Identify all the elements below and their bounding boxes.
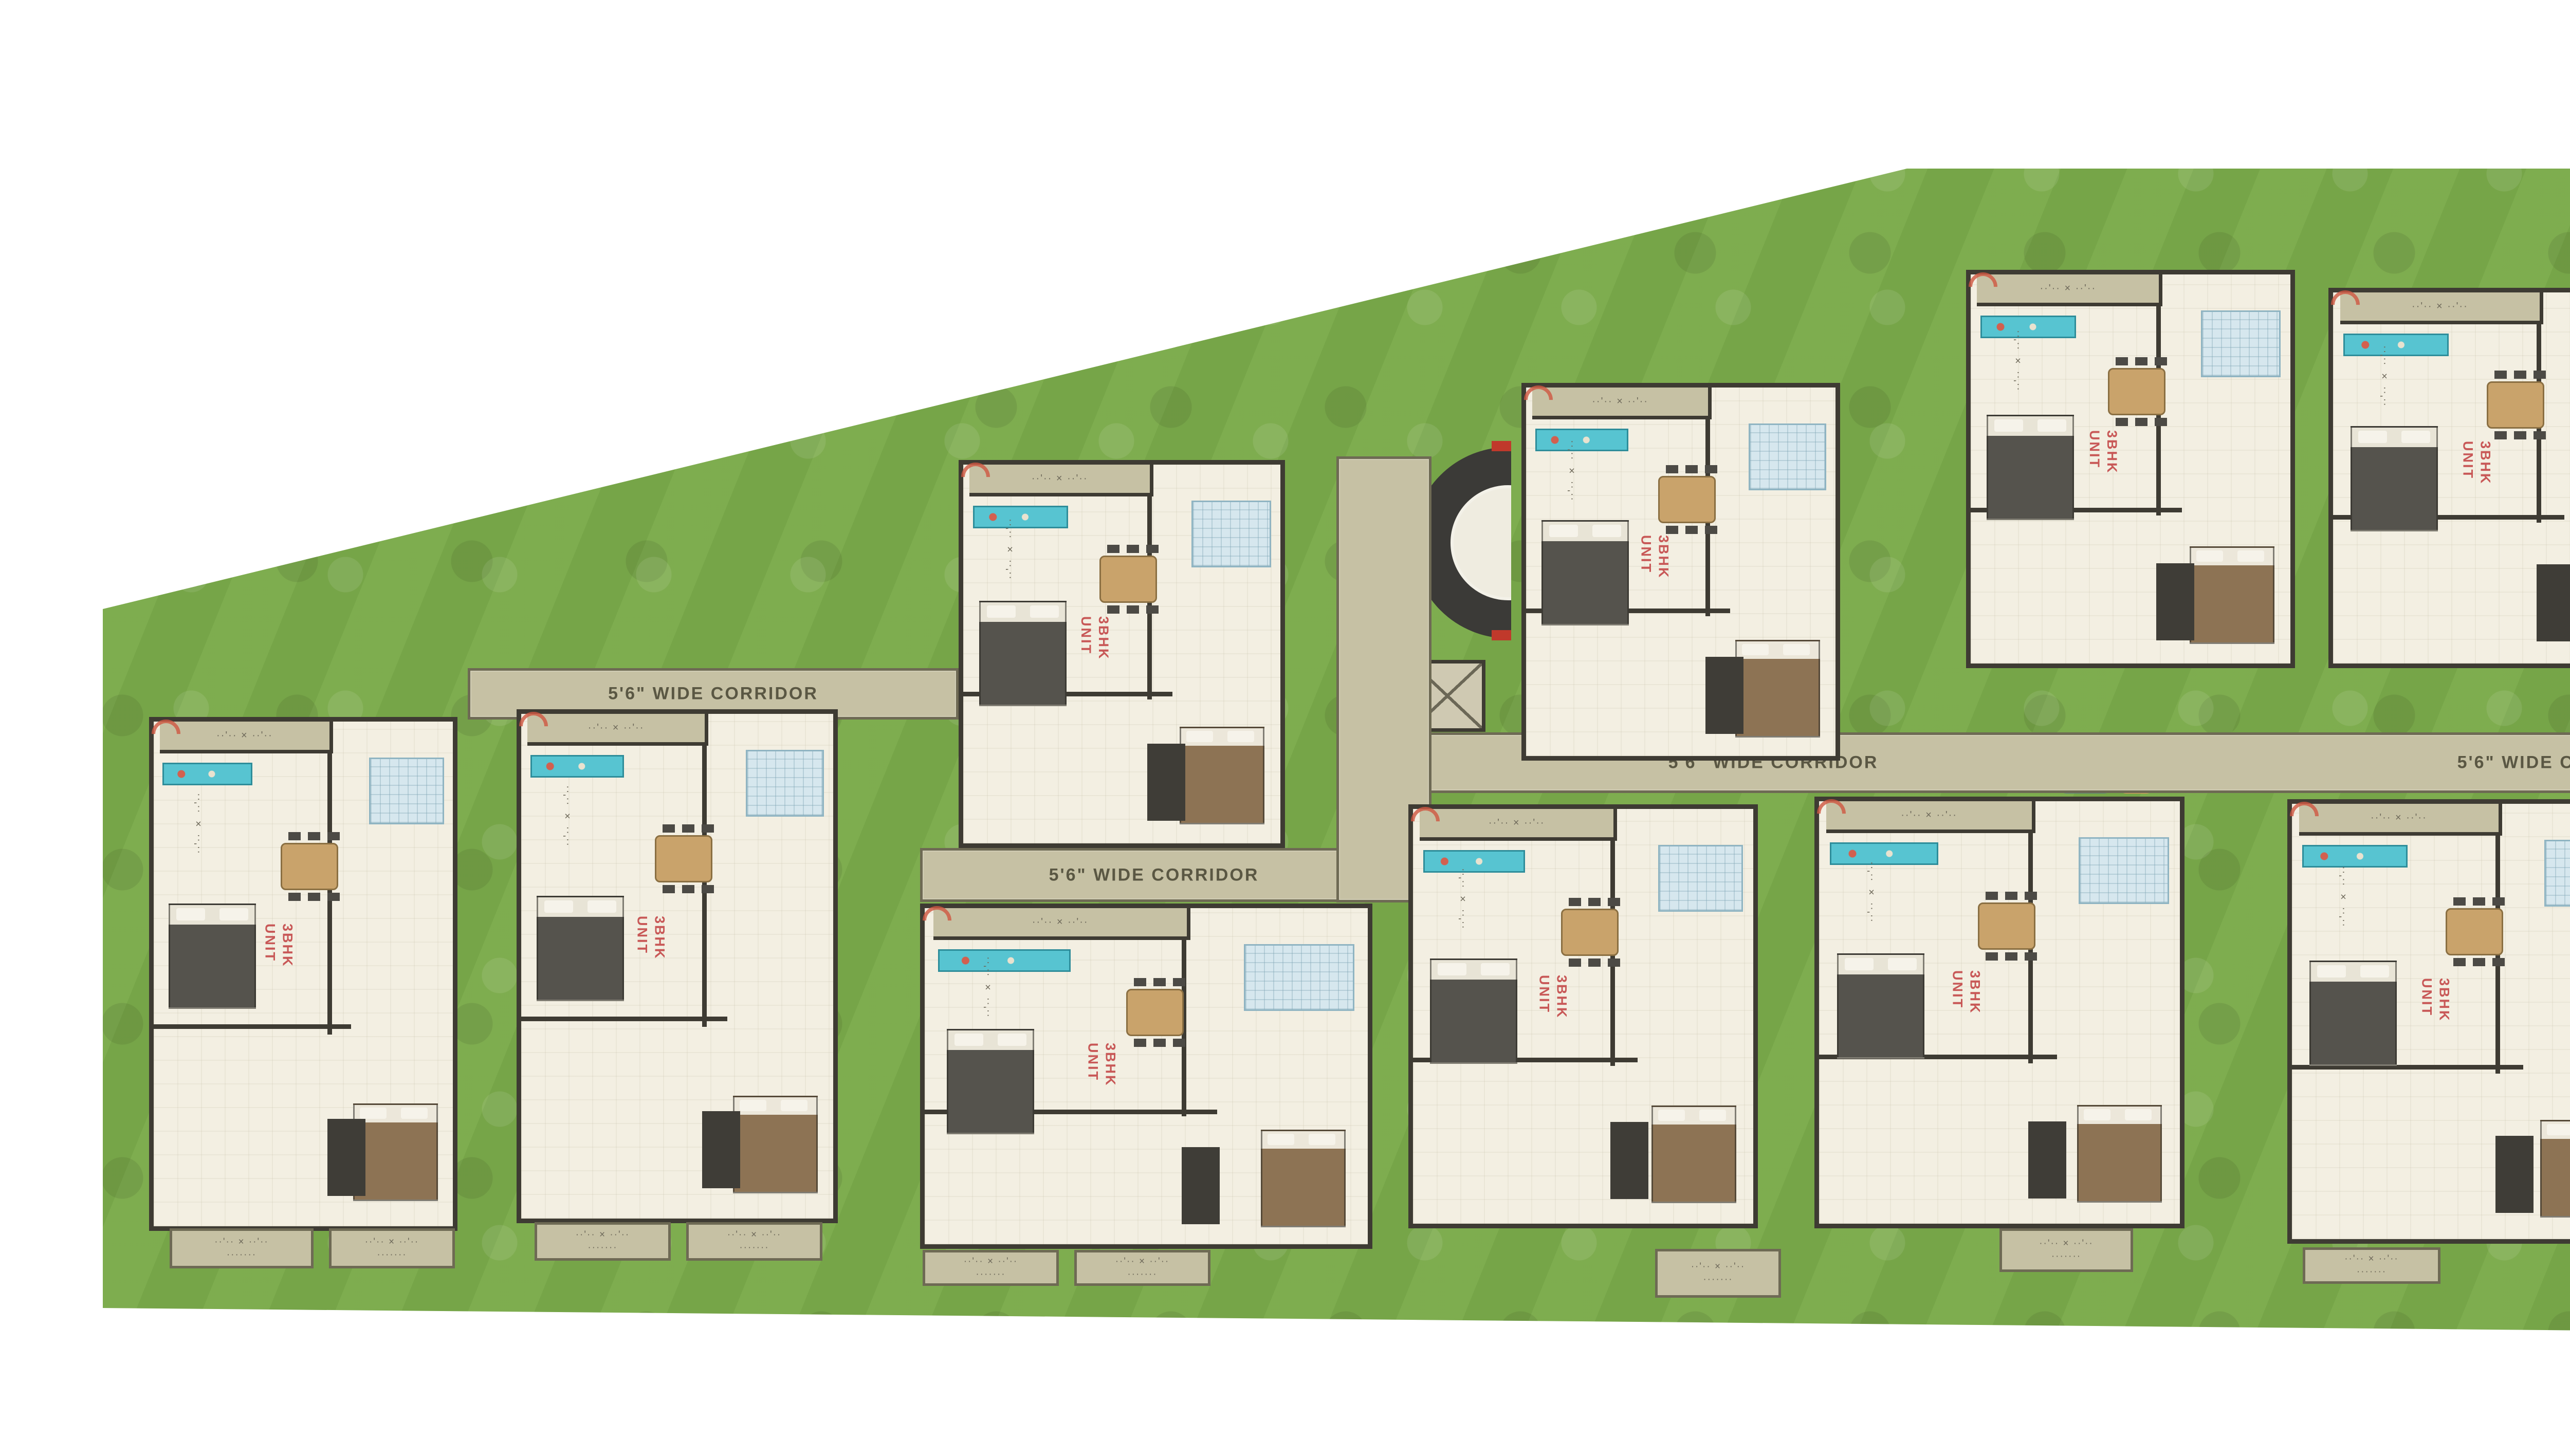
- unit-area-label-box: ··'·· × ··'·········: [329, 1228, 455, 1268]
- label-box-text: ·······: [976, 1269, 1005, 1280]
- bed: [2351, 426, 2438, 531]
- label-box-text: ·······: [1703, 1274, 1733, 1285]
- interior-wall: [521, 1017, 727, 1021]
- unit-type-label: 3BHK UNIT: [262, 924, 297, 1006]
- bathroom: [369, 758, 444, 824]
- bed: [1837, 953, 1924, 1059]
- bed: [1180, 727, 1264, 824]
- label-box-dimension: ··'·· × ··'··: [1691, 1261, 1746, 1273]
- unit-type-label: 3BHK UNIT: [1084, 1043, 1119, 1125]
- bed: [947, 1029, 1034, 1134]
- unit-area-label-box: ··'·· × ··'·········: [1655, 1249, 1781, 1298]
- unit-area-label-box: ··'·· × ··'·········: [686, 1222, 822, 1261]
- dining-table: [1561, 909, 1619, 956]
- unit-bot-1: ··'·· × ··'·· 3BHK UNIT ··'·· × ··'··: [149, 717, 457, 1231]
- unit-top-3: ··'·· × ··'·· 3BHK UNIT ··'·· × ··'··: [2328, 288, 2570, 668]
- balcony-strip: ··'·· × ··'··: [2340, 292, 2544, 324]
- balcony-strip: ··'·· × ··'··: [969, 465, 1153, 496]
- balcony-dimension-text: ··'·· × ··'··: [1901, 809, 1957, 821]
- bed: [1651, 1105, 1736, 1203]
- bed: [537, 896, 624, 1001]
- label-box-text: ·······: [1127, 1269, 1157, 1280]
- room-dimension-text: ··'·· × ··'··: [2012, 329, 2024, 391]
- room-dimension-text: ··'·· × ··'··: [2338, 865, 2349, 927]
- kitchen-counter: [1423, 850, 1526, 873]
- balcony-dimension-text: ··'·· × ··'··: [1032, 473, 1088, 485]
- unit-bot-6: ··'·· × ··'·· 3BHK UNIT ··'·· × ··'··: [2287, 799, 2570, 1244]
- unit-area-label-box: ··'·· × ··'·········: [2303, 1247, 2440, 1284]
- stair-entry-marker: [1492, 630, 1511, 640]
- bed: [733, 1096, 818, 1193]
- balcony-dimension-text: ··'·· × ··'··: [1592, 396, 1648, 408]
- kitchen-counter: [1830, 842, 1938, 865]
- unit-area-label-box: ··'·· × ··'·········: [1074, 1250, 1210, 1286]
- bathroom: [1749, 423, 1826, 490]
- unit-type-label: 3BHK UNIT: [1535, 975, 1570, 1057]
- balcony-strip: ··'·· × ··'··: [160, 722, 334, 753]
- unit-top-1: ··'·· × ··'·· 3BHK UNIT ··'·· × ··'··: [959, 460, 1285, 848]
- wardrobe: [2028, 1121, 2066, 1199]
- corridor-label: 5'6" WIDE CORRIDOR: [2457, 753, 2570, 773]
- wardrobe: [1610, 1122, 1648, 1199]
- bathroom: [2079, 837, 2169, 904]
- unit-type-label: 3BHK UNIT: [2459, 441, 2494, 523]
- bathroom: [1658, 845, 1743, 912]
- unit-type-label: 3BHK UNIT: [2418, 978, 2453, 1060]
- label-box-dimension: ··'·· × ··'··: [1115, 1256, 1170, 1267]
- balcony-dimension-text: ··'·· × ··'··: [2412, 301, 2468, 312]
- label-box-dimension: ··'·· × ··'··: [2344, 1254, 2399, 1265]
- label-box-text: ·······: [588, 1242, 617, 1254]
- balcony-dimension-text: ··'·· × ··'··: [588, 722, 645, 734]
- label-box-text: ·······: [739, 1242, 769, 1254]
- unit-stair-blk: ··'·· × ··'·· 3BHK UNIT ··'·· × ··'··: [1521, 383, 1840, 761]
- balcony-strip: ··'·· × ··'··: [1532, 388, 1712, 419]
- balcony-strip: ··'·· × ··'··: [933, 908, 1190, 940]
- dining-table: [1126, 989, 1184, 1036]
- room-dimension-text: ··'·· × ··'··: [562, 784, 574, 846]
- dining-table: [1099, 556, 1157, 603]
- balcony-strip: ··'·· × ··'··: [1826, 801, 2035, 833]
- bed: [353, 1103, 438, 1201]
- interior-wall: [154, 1024, 351, 1029]
- dining-table: [1658, 476, 1716, 523]
- bed: [1735, 640, 1820, 738]
- unit-area-label-box: ··'·· × ··'·········: [1999, 1228, 2133, 1272]
- label-box-dimension: ··'·· × ··'··: [727, 1229, 782, 1241]
- label-box-dimension: ··'·· × ··'··: [214, 1237, 269, 1248]
- unit-area-label-box: ··'·· × ··'·········: [170, 1228, 314, 1268]
- unit-type-label: 3BHK UNIT: [1638, 535, 1673, 617]
- bathroom: [746, 750, 824, 817]
- stair-entry-marker: [1492, 441, 1511, 451]
- room-dimension-text: ··'·· × ··'··: [982, 955, 994, 1017]
- unit-type-label: 3BHK UNIT: [1077, 616, 1112, 698]
- unit-area-label-box: ··'·· × ··'·········: [923, 1250, 1059, 1286]
- bathroom: [2544, 840, 2570, 907]
- kitchen-counter: [162, 763, 252, 785]
- kitchen-counter: [1535, 429, 1628, 451]
- kitchen-counter: [938, 949, 1071, 972]
- balcony-strip: ··'·· × ··'··: [1420, 809, 1617, 841]
- bed: [1430, 959, 1517, 1064]
- interior-wall: [327, 753, 332, 1035]
- corridor-b3: 5'6" WIDE CORRIDOR: [920, 848, 1388, 902]
- label-box-dimension: ··'·· × ··'··: [365, 1237, 419, 1248]
- unit-bot-3: ··'·· × ··'·· 3BHK UNIT ··'·· × ··'··: [920, 904, 1372, 1249]
- site-plan-canvas: ······· H MES 24 7 .in 5'6" WIDE CORRIDO…: [0, 0, 2570, 1456]
- dining-table: [2446, 908, 2503, 955]
- balcony-dimension-text: ··'·· × ··'··: [2040, 283, 2096, 294]
- interior-wall: [702, 746, 707, 1027]
- dining-table: [2487, 381, 2544, 429]
- room-dimension-text: ··'·· × ··'··: [193, 792, 205, 854]
- unit-bot-2: ··'·· × ··'·· 3BHK UNIT ··'·· × ··'··: [517, 709, 838, 1223]
- unit-area-label-box: ··'·· × ··'·········: [535, 1222, 671, 1261]
- bed: [2309, 961, 2397, 1066]
- kitchen-counter: [2343, 334, 2449, 356]
- corridor-label: 5'6" WIDE CORRIDOR: [1049, 865, 1259, 885]
- bathroom: [2201, 310, 2281, 377]
- bed: [2077, 1105, 2162, 1203]
- bed: [1541, 520, 1629, 625]
- balcony-dimension-text: ··'·· × ··'··: [1489, 817, 1545, 829]
- wardrobe: [1705, 657, 1743, 734]
- bed: [1261, 1130, 1346, 1227]
- balcony-strip: ··'·· × ··'··: [2299, 804, 2503, 836]
- label-box-text: ·······: [2357, 1266, 2387, 1278]
- unit-type-label: 3BHK UNIT: [1949, 970, 1984, 1053]
- kitchen-counter: [1980, 316, 2077, 338]
- bathroom: [1244, 944, 1355, 1011]
- bed: [169, 904, 256, 1009]
- dining-table: [281, 843, 338, 890]
- wardrobe: [2156, 563, 2194, 640]
- dining-table: [2108, 368, 2165, 415]
- label-box-text: ·······: [377, 1249, 407, 1261]
- unit-bot-5: ··'·· × ··'·· 3BHK UNIT ··'·· × ··'··: [1814, 797, 2184, 1228]
- label-box-dimension: ··'·· × ··'··: [2039, 1238, 2094, 1249]
- kitchen-counter: [973, 506, 1068, 528]
- balcony-dimension-text: ··'·· × ··'··: [2371, 812, 2427, 824]
- wardrobe: [1147, 744, 1185, 821]
- wardrobe: [327, 1119, 365, 1196]
- room-dimension-text: ··'·· × ··'··: [1457, 867, 1469, 929]
- kitchen-counter: [530, 755, 624, 778]
- unit-type-label: 3BHK UNIT: [2086, 430, 2121, 512]
- bed: [1987, 415, 2074, 520]
- unit-bot-4: ··'·· × ··'·· 3BHK UNIT ··'·· × ··'··: [1408, 804, 1758, 1228]
- label-box-text: ·······: [2051, 1251, 2081, 1262]
- balcony-dimension-text: ··'·· × ··'··: [216, 730, 273, 742]
- wardrobe: [702, 1111, 740, 1188]
- wardrobe: [2537, 564, 2570, 641]
- room-dimension-text: ··'·· × ··'··: [1866, 860, 1878, 922]
- balcony-dimension-text: ··'·· × ··'··: [1032, 916, 1089, 928]
- wardrobe: [2495, 1136, 2534, 1213]
- wardrobe: [1182, 1147, 1220, 1224]
- dining-table: [1978, 902, 2035, 950]
- bed: [979, 601, 1067, 706]
- room-dimension-text: ··'·· × ··'··: [1566, 439, 1578, 501]
- balcony-strip: ··'·· × ··'··: [527, 714, 708, 746]
- dining-table: [655, 835, 712, 882]
- bed: [2540, 1120, 2570, 1218]
- bathroom: [1191, 501, 1271, 567]
- label-box-text: ·······: [227, 1249, 256, 1261]
- corridor-label: 5'6" WIDE CORRIDOR: [608, 684, 818, 704]
- balcony-strip: ··'·· × ··'··: [1977, 274, 2162, 306]
- kitchen-counter: [2302, 845, 2408, 868]
- label-box-dimension: ··'·· × ··'··: [964, 1256, 1018, 1267]
- room-dimension-text: ··'·· × ··'··: [1004, 518, 1016, 579]
- label-box-dimension: ··'·· × ··'··: [576, 1229, 630, 1241]
- unit-top-2: ··'·· × ··'·· 3BHK UNIT ··'·· × ··'··: [1966, 270, 2295, 668]
- bed: [2190, 546, 2274, 644]
- room-dimension-text: ··'·· × ··'··: [2379, 344, 2391, 406]
- unit-type-label: 3BHK UNIT: [634, 916, 669, 998]
